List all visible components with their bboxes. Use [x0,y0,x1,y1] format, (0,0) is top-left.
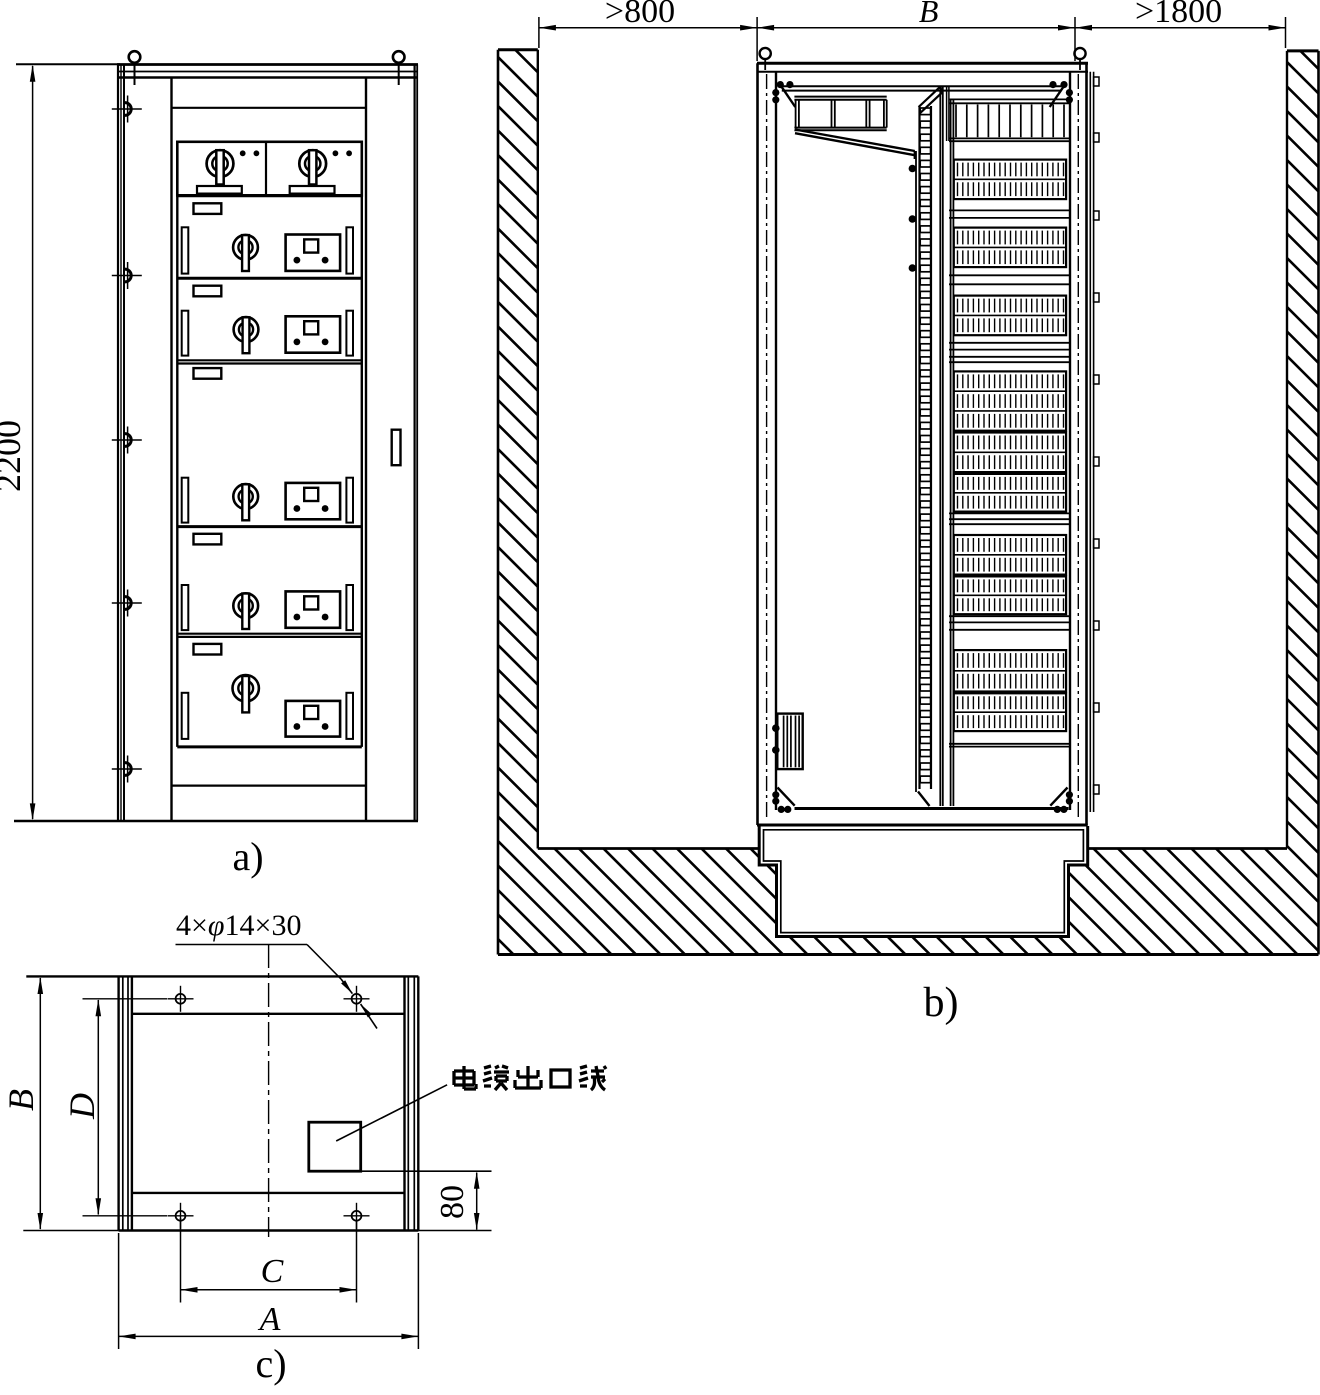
svg-text:A: A [258,1301,281,1338]
svg-text:D: D [62,1093,102,1120]
svg-text:c): c) [255,1341,286,1386]
svg-text:b): b) [924,980,959,1026]
svg-text:2200: 2200 [0,420,28,492]
svg-text:80: 80 [434,1185,471,1219]
svg-text:>1800: >1800 [1135,0,1222,30]
svg-text:a): a) [232,834,263,879]
svg-text:4×φ14×30: 4×φ14×30 [176,909,301,942]
svg-text:B: B [919,0,939,29]
svg-text:>800: >800 [605,0,675,30]
svg-text:C: C [261,1253,284,1290]
svg-text:B: B [1,1089,41,1111]
